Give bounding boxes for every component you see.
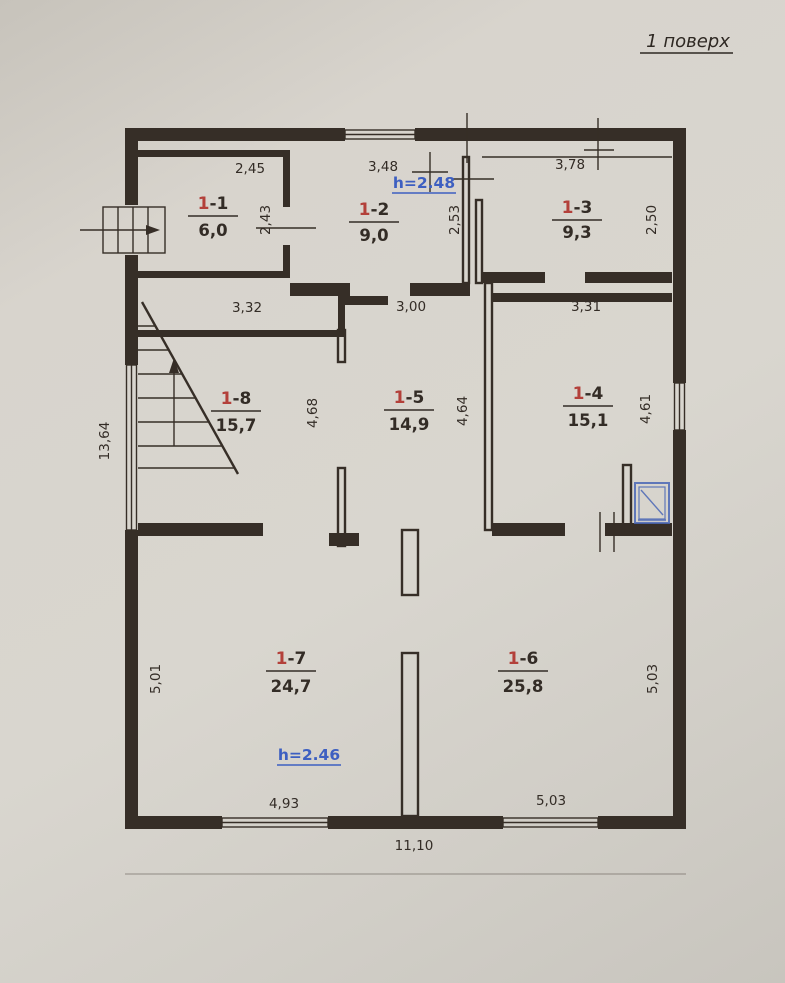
window-right-room14: [675, 383, 685, 430]
room-number-1-5: 1-5: [394, 388, 425, 408]
room-1-5: 3,00 1-5 14,9 4,64: [384, 299, 471, 434]
dim-width-1-5: 3,00: [396, 299, 426, 315]
room-1-4: 3,31 1-4 15,1 4,61: [563, 299, 654, 430]
room-1-1: 2,45 1-1 6,0 2,43: [188, 161, 274, 240]
dim-bottom-window-right: 5,03: [536, 793, 566, 809]
dim-width-1-2: 3,48: [368, 159, 398, 175]
window-left-stairs: [127, 365, 137, 530]
dim-height-1-1: 2,43: [258, 205, 274, 235]
staircase: [138, 302, 238, 474]
dim-left-total: 13,64: [97, 422, 113, 461]
ceiling-height-upper: h=2.48: [393, 174, 455, 192]
dim-bottom-total: 11,10: [395, 838, 434, 854]
room-area-1-4: 15,1: [568, 411, 609, 430]
dim-height-1-2: 2,53: [447, 205, 463, 235]
dim-height-1-7: 5,01: [148, 664, 164, 694]
dim-height-1-6: 5,03: [645, 664, 661, 694]
room-1-7: 1-7 24,7 5,01 h=2.46: [148, 649, 341, 765]
stairs-up-arrow-icon: [169, 358, 179, 446]
room-number-1-8: 1-8: [221, 389, 252, 409]
room-area-1-2: 9,0: [359, 226, 388, 245]
dim-height-1-5: 4,64: [455, 396, 471, 426]
entrance-steps: [80, 207, 165, 253]
dim-width-1-8: 3,32: [232, 300, 262, 316]
room-1-8: 3,32 1-8 15,7 4,68: [211, 300, 321, 435]
shower-tray-icon: [635, 483, 669, 523]
interior-walls: [138, 150, 672, 816]
room-1-3: 3,78 1-3 9,3 2,50: [552, 157, 660, 242]
dim-height-1-3: 2,50: [644, 205, 660, 235]
exterior-dimensions: 13,64 4,93 5,03 11,10: [97, 422, 566, 854]
window-top: [345, 130, 415, 139]
page-title: 1 поверх: [646, 31, 730, 52]
floor-plan-page: 1 поверх 2,45 1-1 6,0 2,43 3,48 h=2.48 1…: [0, 0, 785, 983]
room-number-1-1: 1-1: [198, 194, 229, 214]
room-area-1-7: 24,7: [271, 677, 312, 696]
room-area-1-6: 25,8: [503, 677, 544, 696]
dim-width-1-1: 2,45: [235, 161, 265, 177]
dim-height-1-8: 4,68: [305, 398, 321, 428]
room-area-1-5: 14,9: [389, 415, 430, 434]
dim-bottom-window-left: 4,93: [269, 796, 299, 812]
window-bottom-right: [503, 818, 598, 827]
room-area-1-3: 9,3: [562, 223, 591, 242]
room-number-1-4: 1-4: [573, 384, 604, 404]
dim-width-1-3: 3,78: [555, 157, 585, 173]
dim-width-1-4: 3,31: [571, 299, 601, 315]
room-area-1-1: 6,0: [198, 221, 227, 240]
dim-height-1-4: 4,61: [638, 394, 654, 424]
sheet-title: 1 поверх: [640, 31, 733, 53]
floor-plan-drawing: 1 поверх 2,45 1-1 6,0 2,43 3,48 h=2.48 1…: [0, 0, 785, 983]
room-1-6: 1-6 25,8 5,03: [498, 649, 661, 696]
room-number-1-2: 1-2: [359, 200, 390, 220]
ceiling-height-lower: h=2.46: [278, 746, 340, 764]
room-number-1-7: 1-7: [276, 649, 307, 669]
room-area-1-8: 15,7: [216, 416, 257, 435]
room-number-1-6: 1-6: [508, 649, 539, 669]
window-bottom-left: [222, 818, 328, 827]
room-number-1-3: 1-3: [562, 198, 593, 218]
entrance-arrow-icon: [80, 225, 160, 235]
